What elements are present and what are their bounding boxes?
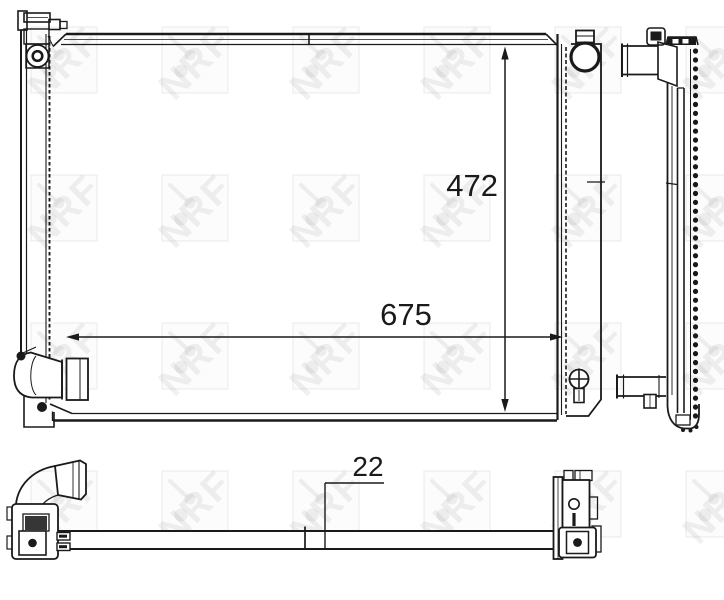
clamp-screw-dot [37, 402, 47, 412]
side-top-cap [666, 37, 698, 45]
radiator-cap-side [571, 31, 599, 72]
mount-pin-dot [573, 538, 582, 547]
dimension-depth-label: 22 [352, 451, 383, 482]
filler-boss [26, 44, 49, 68]
drawing-svg: NRF [0, 0, 724, 600]
mount-pin-dot [28, 539, 37, 548]
nrf-watermark-pattern [0, 0, 724, 600]
radiator-technical-drawing: NRF [0, 0, 724, 600]
dimension-height-label: 472 [446, 168, 498, 203]
dimension-width-label: 675 [380, 297, 432, 332]
